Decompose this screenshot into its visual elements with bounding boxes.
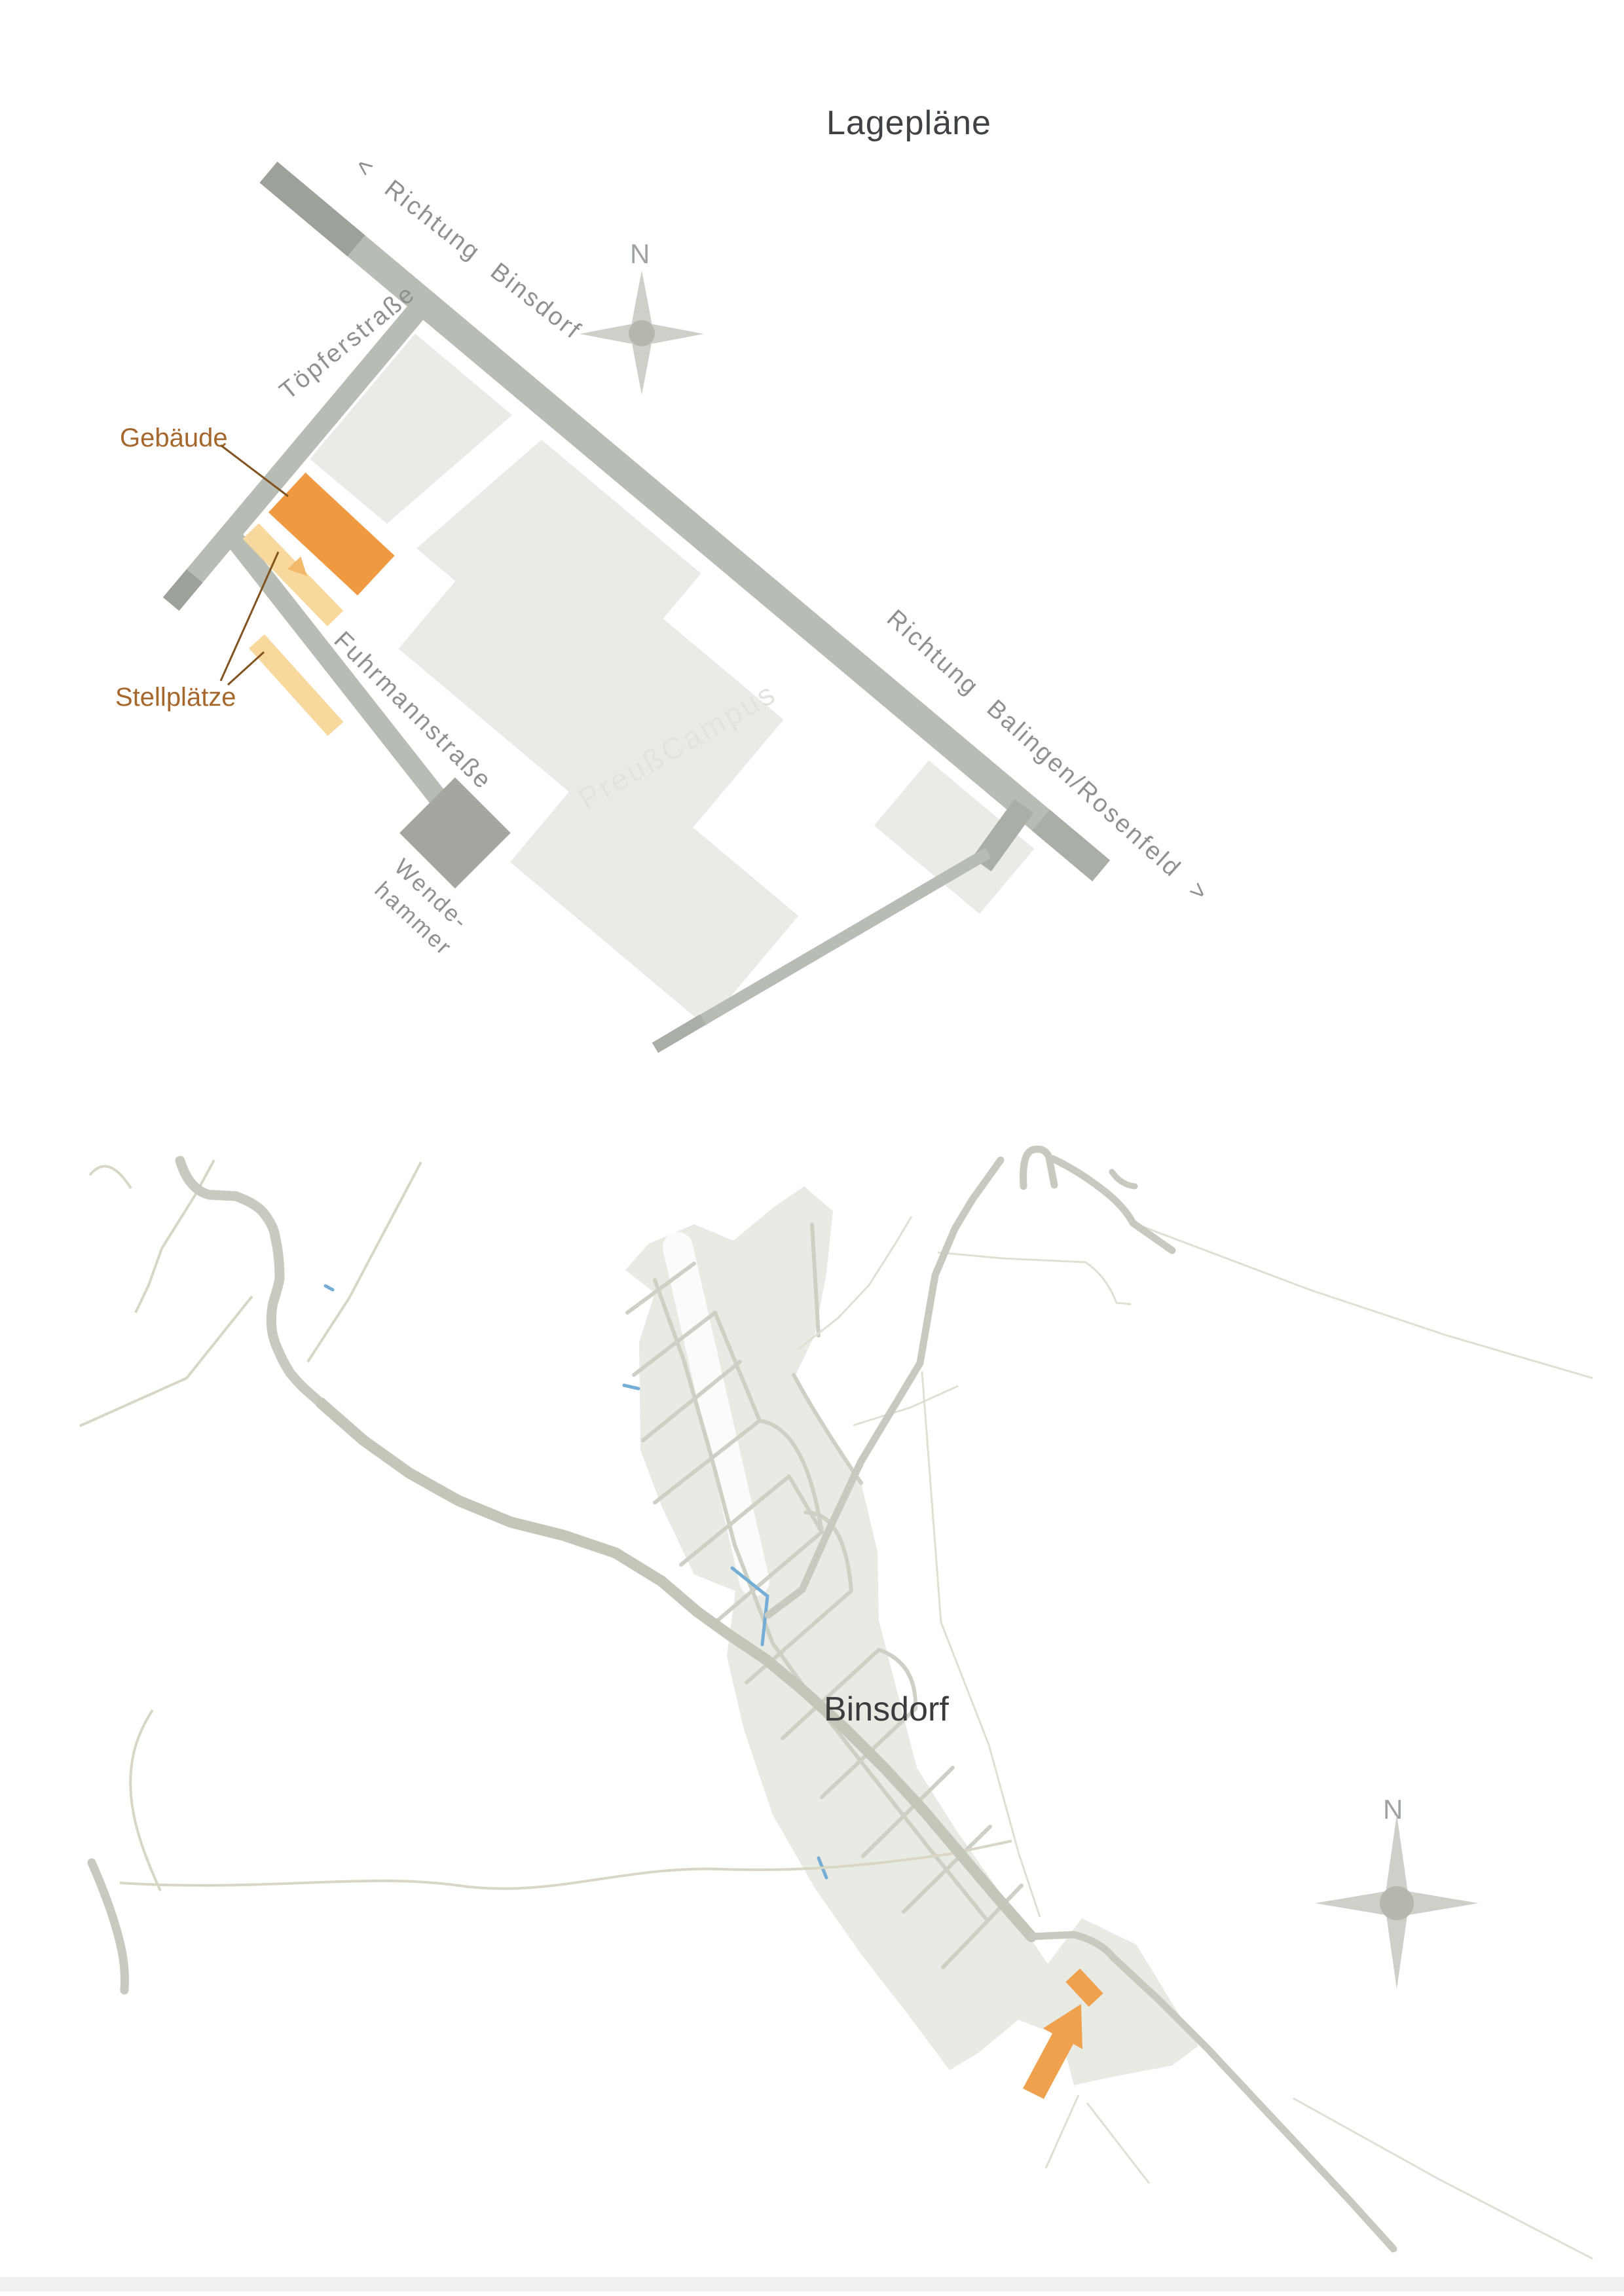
scan-artifact-band [0,2277,1624,2291]
stellplaetze-leader-line-2 [228,652,264,685]
area-map-compass: N [1315,1794,1479,1989]
compass-n-label: N [630,238,651,269]
main-road-dark-start [268,172,356,246]
creek-1 [624,1385,638,1389]
site-plan: PreußCampus < Richtung Binsdorf Richtung… [0,0,1624,1146]
top-road-arc [1112,1172,1135,1186]
topferstrasse-road-end [171,576,194,604]
compass-hub [629,320,655,346]
village-area [625,1186,1198,2085]
main-road-dark-end [1041,820,1101,871]
north-road [180,1161,321,1403]
stellplaetze-label: Stellplätze [115,683,236,712]
compass-hub [1380,1886,1414,1920]
creek-4 [325,1286,333,1290]
site-plan-compass: N [580,238,704,395]
southwest-road [92,1863,125,1990]
place-label-binsdorf: Binsdorf [824,1690,949,1728]
gebaeude-label: Gebäude [120,424,228,452]
compass-n-label: N [1383,1794,1404,1825]
area-map: Binsdorf N [0,1146,1624,2296]
top-road-u-curve [1024,1149,1054,1186]
